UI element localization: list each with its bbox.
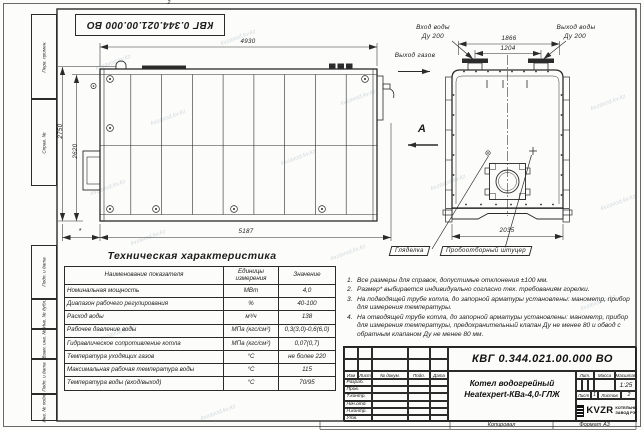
tech-row: Максимальная рабочая температура воды°С1…	[65, 364, 336, 377]
tb-change-cell	[430, 359, 448, 371]
note-number: 2.	[347, 286, 357, 294]
tb-sign-cell	[430, 408, 448, 415]
tb-product-name: Котел водогрейный Heatexpert-КВа-4,0-ГЛЖ	[448, 371, 576, 422]
end-view-linework	[443, 55, 572, 222]
dim-2035: 2035	[485, 228, 529, 234]
tb-sign-cell	[408, 408, 430, 415]
tb-row-razrab: Разраб.	[344, 379, 372, 386]
tb-sign-cell	[430, 401, 448, 408]
tb-change-cell	[358, 359, 372, 371]
tb-sign-cell	[372, 415, 408, 422]
tech-cell: 4,0	[279, 285, 336, 298]
dim-5187: 5187	[224, 229, 268, 235]
tech-cell: 0,07(0,7)	[279, 337, 336, 350]
margin-cell-podp-data-2: Подп. и дата	[31, 359, 57, 394]
margin-cell-sprav-no: Справ. №	[31, 99, 57, 186]
tech-table-header-row: Наименование показателя Единицы измерени…	[65, 267, 336, 285]
margin-label: Взам. инв. №	[42, 330, 47, 359]
tech-row: Температура воды (вход/выход)°С70/95	[65, 377, 336, 390]
note-number: 4.	[347, 314, 357, 339]
tech-cell: не более 220	[279, 350, 336, 363]
note-text: На подводящей трубе котла, до запорной а…	[357, 296, 634, 313]
tb-sheets-label: Листов	[598, 391, 621, 399]
dim-2620: 2620	[73, 136, 79, 166]
tech-cell: 0,3(3,0)-0,6(6,0)	[279, 324, 336, 337]
water-inlet-dn: Ду 200	[418, 34, 448, 40]
tb-sign-cell	[408, 415, 430, 422]
tech-header-name: Наименование показателя	[65, 267, 224, 285]
kvzr-logo-icon	[576, 405, 584, 417]
zone-marker: 2	[164, 1, 174, 7]
tech-cell: °С	[224, 377, 279, 390]
tech-row: Расход водым³/ч138	[65, 311, 336, 324]
tb-col-podp: Подп.	[408, 371, 430, 379]
tb-change-cell	[408, 347, 430, 359]
sampling-fitting-label-text: Пробоотборный штуцер	[446, 248, 526, 254]
margin-cell-inv-podl: Инв. № подл.	[31, 394, 57, 421]
tb-logo-cell: KVZR КОТЕЛЬНЫЙ ЗАВОД РЭП	[576, 399, 637, 422]
tb-change-cell	[408, 359, 430, 371]
tb-row-utv: Утв.	[344, 415, 372, 422]
margin-label: Подп. и дата	[42, 362, 47, 391]
tb-sign-cell	[372, 386, 408, 393]
tb-sign-cell	[372, 379, 408, 386]
tb-product-line1: Котел водогрейный	[470, 378, 555, 389]
tb-sign-cell	[430, 415, 448, 422]
margin-cell-perv-primen: Перв. примен.	[31, 14, 57, 99]
tech-row: Температура уходящих газов°Сне более 220	[65, 350, 336, 363]
tech-cell: %	[224, 298, 279, 311]
tb-row-nachotd: Нач.отд.	[344, 401, 372, 408]
sampling-fitting-label: Пробоотборный штуцер	[440, 246, 533, 256]
tech-table: Наименование показателя Единицы измерени…	[64, 266, 336, 391]
top-stamp-doc-number: КВГ 0.344.021.00.000 ВО	[75, 14, 225, 36]
tb-col-izm: Изм	[344, 371, 358, 379]
tech-header-units: Единицы измерения	[224, 267, 279, 285]
margin-label: Перв. примен.	[42, 41, 47, 72]
tech-cell: МВт	[224, 285, 279, 298]
tech-cell: 70/95	[279, 377, 336, 390]
tb-mass-cell	[594, 379, 615, 391]
dim-star: *	[74, 228, 86, 235]
front-view-linework	[83, 61, 394, 221]
dim-2750: 2750	[58, 116, 64, 146]
tb-sign-cell	[408, 393, 430, 400]
note-text: На отводящей трубе котла, до запорной ар…	[357, 314, 634, 339]
tech-row: Диапазон рабочего регулирования%40-100	[65, 298, 336, 311]
note-item: 3.На подводящей трубе котла, до запорной…	[347, 296, 634, 313]
notes-list: 1.Все размеры для справок, допустимые от…	[347, 277, 634, 340]
title-block: Изм Лист № докум. Подп. Дата Разраб. Про…	[343, 346, 636, 421]
tb-change-cell	[372, 347, 408, 359]
tb-change-cell	[344, 347, 358, 359]
tb-sign-cell	[408, 401, 430, 408]
tech-cell: м³/ч	[224, 311, 279, 324]
tech-cell: Гидравлическое сопротивление котла	[65, 337, 224, 350]
tb-col-list: Лист	[358, 371, 372, 379]
tech-cell: МПа (кгс/см²)	[224, 337, 279, 350]
tb-scale-header: Масштаб	[615, 371, 637, 379]
tb-change-cell	[358, 347, 372, 359]
kvzr-logo-subtitle: КОТЕЛЬНЫЙ ЗАВОД РЭП	[615, 406, 637, 415]
gas-outlet-label: Выход газов	[383, 53, 447, 59]
tb-row-tkontr: Т.контр.	[344, 393, 372, 400]
front-view-dimensions	[58, 43, 438, 241]
water-inlet-label: Вход воды	[412, 25, 454, 31]
kvzr-logo-text: KVZR	[586, 405, 613, 416]
kvzr-logo: KVZR КОТЕЛЬНЫЙ ЗАВОД РЭП	[576, 405, 637, 417]
tech-cell: 40-100	[279, 298, 336, 311]
format-label: Формат А3	[553, 422, 636, 428]
tb-row-nkontr: Н.контр.	[344, 408, 372, 415]
tb-sign-cell	[430, 379, 448, 386]
note-number: 1.	[347, 277, 357, 285]
note-item: 4.На отводящей трубе котла, до запорной …	[347, 314, 634, 339]
water-outlet-label: Выход воды	[553, 25, 599, 31]
tb-row-prov: Пров.	[344, 386, 372, 393]
tb-change-cell	[430, 347, 448, 359]
tech-cell: Расход воды	[65, 311, 224, 324]
tech-row: Номинальная мощностьМВт4,0	[65, 285, 336, 298]
tb-change-cell	[344, 359, 358, 371]
tech-cell: 138	[279, 311, 336, 324]
margin-label: Подп. и дата	[42, 257, 47, 286]
water-outlet-dn: Ду 200	[560, 34, 590, 40]
tech-cell: Температура уходящих газов	[65, 350, 224, 363]
note-item: 1.Все размеры для справок, допустимые от…	[347, 277, 634, 285]
tech-characteristics-section: Техническая характеристика Наименование …	[64, 250, 320, 391]
tech-cell: °С	[224, 364, 279, 377]
tb-sign-cell	[430, 386, 448, 393]
tb-sign-cell	[372, 401, 408, 408]
dim-4930: 4930	[226, 39, 270, 45]
tb-sheet-label: Лист	[576, 391, 591, 399]
tech-cell: Рабочее давление воды	[65, 324, 224, 337]
copied-label: Копировал	[450, 422, 553, 428]
margin-cell-podp-data-1: Подп. и дата	[31, 245, 57, 299]
tech-cell: МПа (кгс/см²)	[224, 324, 279, 337]
tb-sign-cell	[372, 408, 408, 415]
margin-cell-vzam-inv: Взам. инв. №	[31, 329, 57, 359]
view-arrow-letter: А	[412, 124, 432, 135]
tech-cell: Диапазон рабочего регулирования	[65, 298, 224, 311]
tb-sheet-value: 1	[591, 391, 598, 399]
tech-row: Рабочее давление водыМПа (кгс/см²)0,3(3,…	[65, 324, 336, 337]
tech-cell: Максимальная рабочая температура воды	[65, 364, 224, 377]
tb-sign-cell	[430, 393, 448, 400]
margin-cell-inv-dubl: Инв. № дубл.	[31, 299, 57, 329]
tech-cell: Температура воды (вход/выход)	[65, 377, 224, 390]
margin-label: Инв. № дубл.	[42, 300, 47, 329]
tb-col-doc: № докум.	[372, 371, 408, 379]
dim-1204: 1204	[486, 46, 530, 52]
tb-product-line2: Heatexpert-КВа-4,0-ГЛЖ	[464, 389, 560, 400]
tech-row: Гидравлическое сопротивление котлаМПа (к…	[65, 337, 336, 350]
margin-label: Справ. №	[42, 132, 47, 153]
tb-doc-number: КВГ 0.344.021.00.000 ВО	[448, 347, 637, 371]
tech-cell: °С	[224, 350, 279, 363]
note-item: 2.Размер* выбирается индивидуально согла…	[347, 286, 634, 294]
dim-1866: 1866	[487, 36, 531, 42]
sight-glass-label: Гляделка	[389, 246, 431, 256]
tb-lit-header: Лит.	[576, 371, 594, 379]
tb-sign-cell	[408, 379, 430, 386]
tb-col-data: Дата	[430, 371, 448, 379]
tb-sheets-value: 2	[621, 391, 637, 399]
note-text: Все размеры для справок, допустимые откл…	[357, 277, 634, 285]
tech-cell: Номинальная мощность	[65, 285, 224, 298]
tb-sign-cell	[372, 393, 408, 400]
tb-scale-value: 1:25	[615, 379, 637, 391]
tb-mass-header: Масса	[594, 371, 615, 379]
note-number: 3.	[347, 296, 357, 313]
sight-glass-label-text: Гляделка	[395, 248, 424, 254]
tb-change-cell	[372, 359, 408, 371]
note-text: Размер* выбирается индивидуально согласн…	[357, 286, 634, 294]
tech-table-title: Техническая характеристика	[64, 250, 320, 262]
kvzr-logo-sub2: ЗАВОД РЭП	[615, 411, 637, 415]
tech-header-value: Значение	[279, 267, 336, 285]
drawing-sheet: kvzavod.kv.kz kvzavod.kv.kz kvzavod.kv.k…	[0, 0, 644, 430]
margin-label: Инв. № подл.	[42, 393, 47, 422]
tech-cell: 115	[279, 364, 336, 377]
tb-sign-cell	[408, 386, 430, 393]
